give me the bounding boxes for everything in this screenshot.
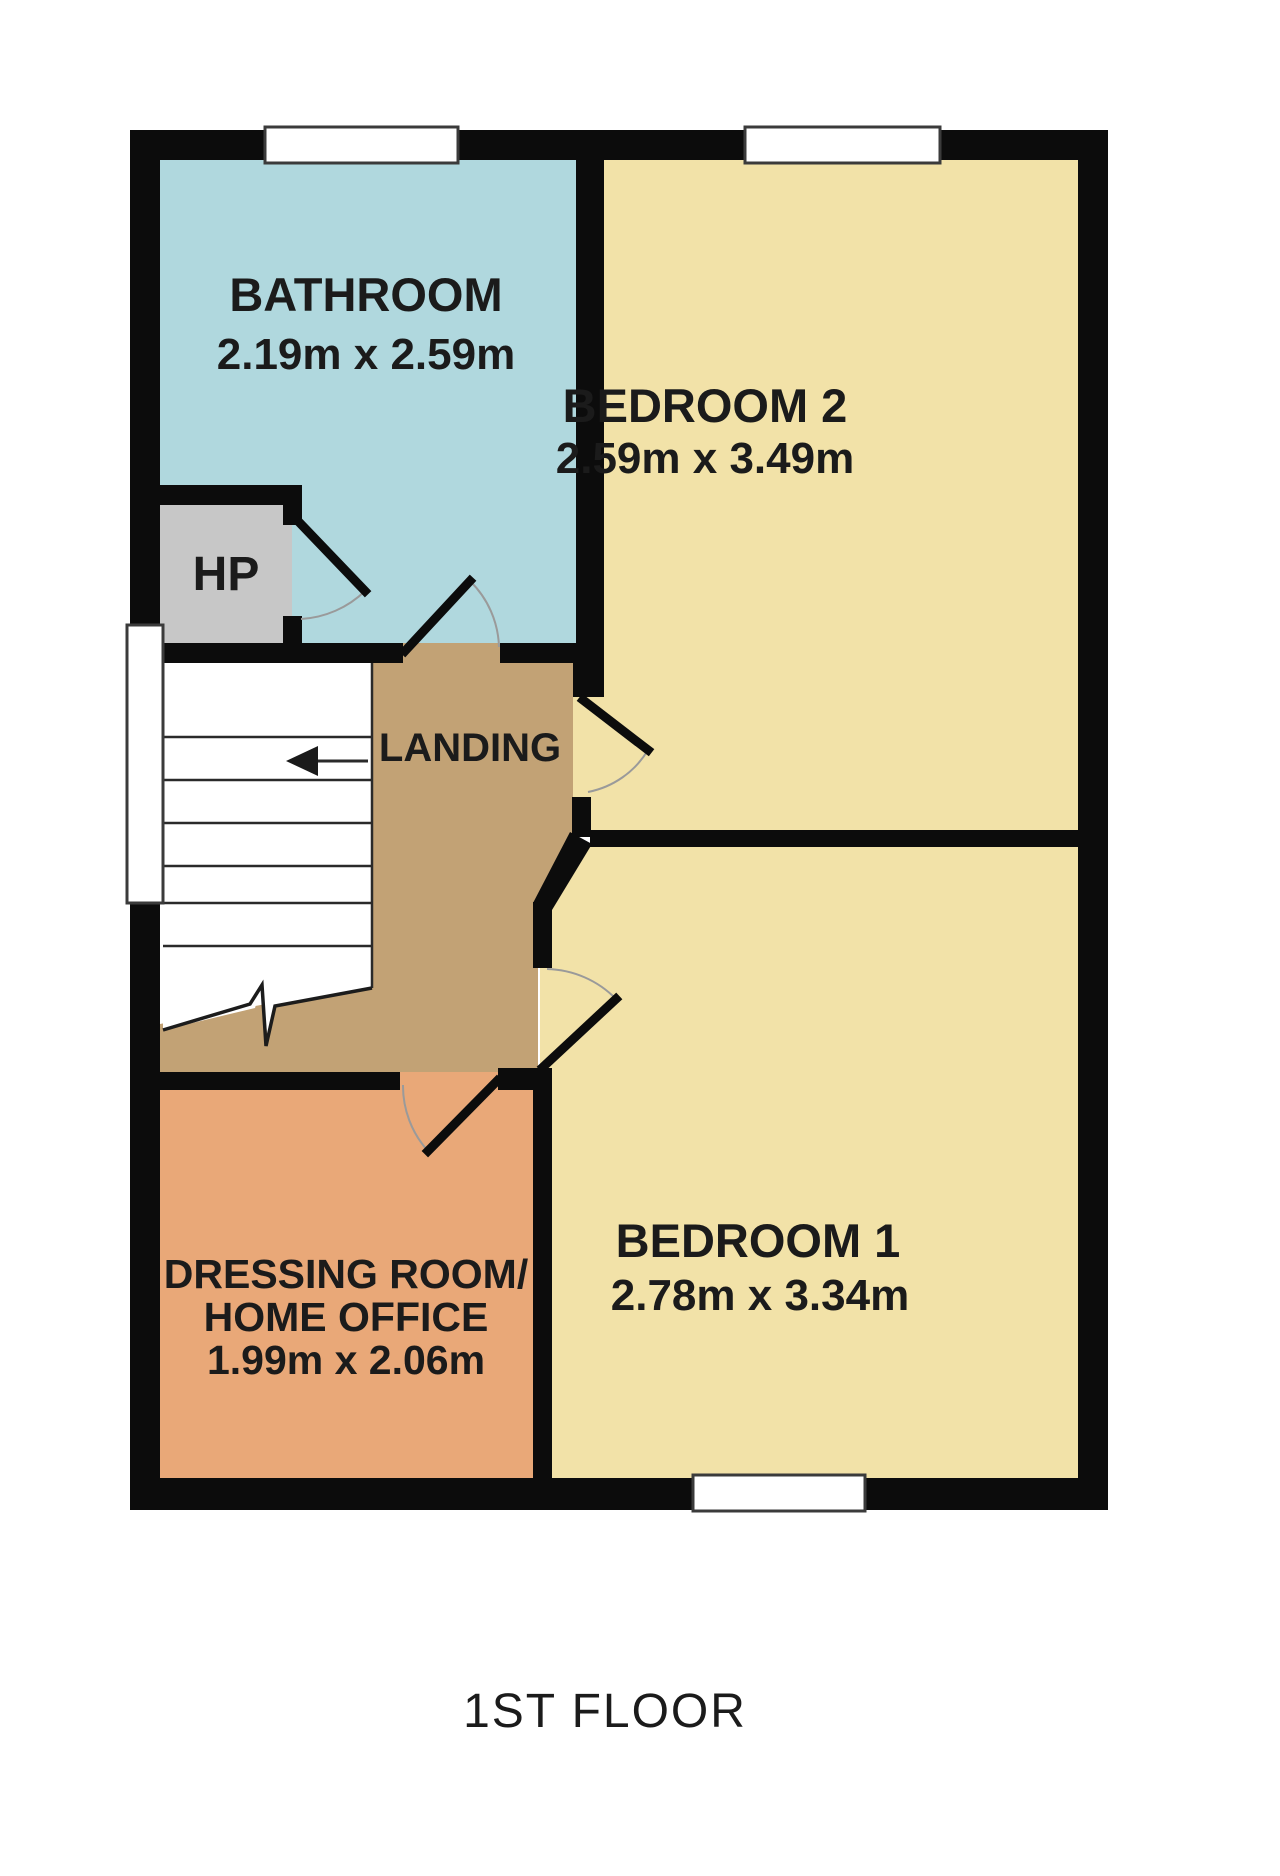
bedroom2-window — [745, 127, 940, 163]
stairs-area — [163, 663, 372, 1042]
bathroom-doorway-threshold — [403, 643, 500, 663]
wall-bedroom2-bedroom1 — [590, 830, 1078, 847]
dressing-room-dimensions: 1.99m x 2.06m — [207, 1337, 485, 1383]
bedroom1-label: BEDROOM 1 — [616, 1214, 901, 1267]
wall-hp-door-stub-bottom — [283, 616, 302, 643]
dressing-room-label-line1: DRESSING ROOM/ — [164, 1251, 528, 1297]
wall-bathroom-bottom-right — [500, 643, 576, 663]
wall-landing-bedroom2-lower — [572, 797, 591, 837]
wall-hp-top — [160, 485, 302, 505]
dressing-room-label-line2: HOME OFFICE — [204, 1294, 489, 1340]
bathroom-window — [265, 127, 458, 163]
wall-landing-bedroom1 — [533, 902, 552, 968]
hot-press-label: HP — [193, 548, 260, 601]
landing-label: LANDING — [379, 726, 561, 770]
wall-bathroom-bottom-left — [160, 643, 403, 663]
dressing-doorway-threshold — [400, 1072, 498, 1090]
wall-dressing-top — [160, 1072, 400, 1090]
wall-landing-bedroom2-upper — [573, 657, 604, 697]
bedroom1-floor — [540, 847, 1078, 1478]
bedroom1-window — [693, 1475, 865, 1511]
bedroom2-floor — [590, 160, 1078, 830]
stairs-window — [127, 625, 163, 903]
wall-outer-right — [1078, 160, 1108, 1478]
bedroom2-label: BEDROOM 2 — [563, 379, 848, 432]
floor-title: 1ST FLOOR — [463, 1685, 747, 1738]
bathroom-label: BATHROOM — [229, 268, 502, 321]
bedroom2-dimensions: 2.59m x 3.49m — [556, 434, 854, 483]
bathroom-dimensions: 2.19m x 2.59m — [217, 330, 515, 379]
wall-dressing-bedroom1 — [533, 1090, 552, 1478]
floor-plan-page: BATHROOM 2.19m x 2.59m BEDROOM 2 2.59m x… — [0, 0, 1280, 1876]
bedroom1-dimensions: 2.78m x 3.34m — [611, 1271, 909, 1320]
floor-plan-drawing: BATHROOM 2.19m x 2.59m BEDROOM 2 2.59m x… — [0, 0, 1280, 1876]
wall-outer-bottom — [130, 1478, 1108, 1510]
